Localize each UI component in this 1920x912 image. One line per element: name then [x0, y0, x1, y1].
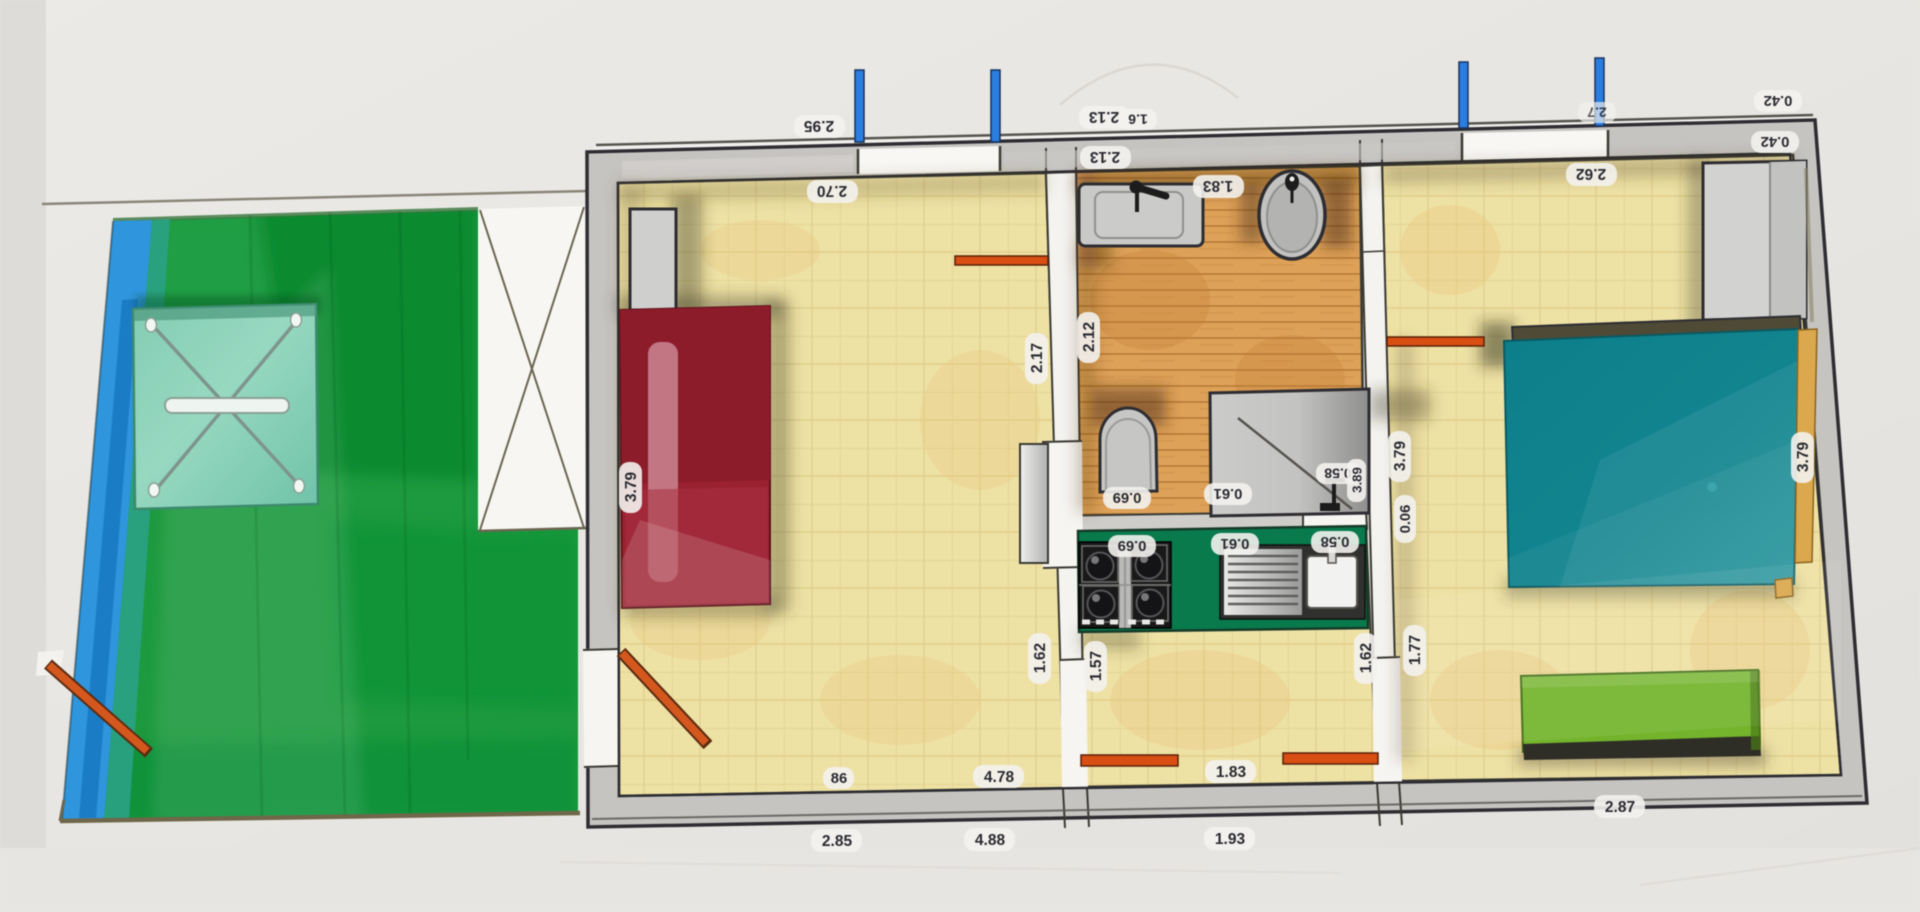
svg-text:1.62: 1.62 [1032, 643, 1049, 673]
svg-text:2.87: 2.87 [1605, 799, 1635, 816]
svg-text:0.06: 0.06 [1398, 505, 1414, 534]
svg-text:86: 86 [831, 771, 847, 787]
svg-text:1.62: 1.62 [1358, 643, 1375, 673]
svg-text:2.7: 2.7 [1587, 104, 1607, 120]
svg-text:1.93: 1.93 [1215, 831, 1246, 848]
svg-text:2.95: 2.95 [804, 117, 835, 134]
svg-text:2.85: 2.85 [822, 833, 853, 850]
svg-text:3.79: 3.79 [1392, 441, 1409, 472]
svg-text:1.83: 1.83 [1216, 764, 1247, 781]
svg-text:1.77: 1.77 [1407, 635, 1424, 665]
svg-text:3.89: 3.89 [1349, 467, 1364, 493]
svg-text:1.83: 1.83 [1203, 177, 1234, 194]
svg-text:3.79: 3.79 [1795, 442, 1812, 473]
svg-text:0.61: 0.61 [1221, 535, 1250, 551]
svg-text:0.42: 0.42 [1761, 133, 1790, 149]
svg-text:2.17: 2.17 [1029, 343, 1046, 373]
svg-text:2.13: 2.13 [1089, 108, 1120, 125]
svg-text:1.6: 1.6 [1128, 111, 1148, 127]
svg-text:2.12: 2.12 [1081, 322, 1098, 352]
svg-text:0.61: 0.61 [1214, 485, 1243, 501]
svg-text:3.79: 3.79 [623, 472, 640, 503]
svg-text:4.88: 4.88 [975, 832, 1006, 849]
svg-text:0.42: 0.42 [1764, 92, 1793, 108]
svg-text:2.62: 2.62 [1576, 165, 1606, 182]
svg-text:2.13: 2.13 [1090, 148, 1121, 165]
svg-text:1.57: 1.57 [1088, 651, 1105, 681]
svg-text:0.69: 0.69 [1113, 489, 1142, 505]
svg-text:4.78: 4.78 [984, 769, 1015, 786]
svg-text:2.70: 2.70 [817, 182, 847, 199]
svg-text:0.58: 0.58 [1321, 533, 1350, 549]
svg-text:0.69: 0.69 [1118, 537, 1147, 553]
